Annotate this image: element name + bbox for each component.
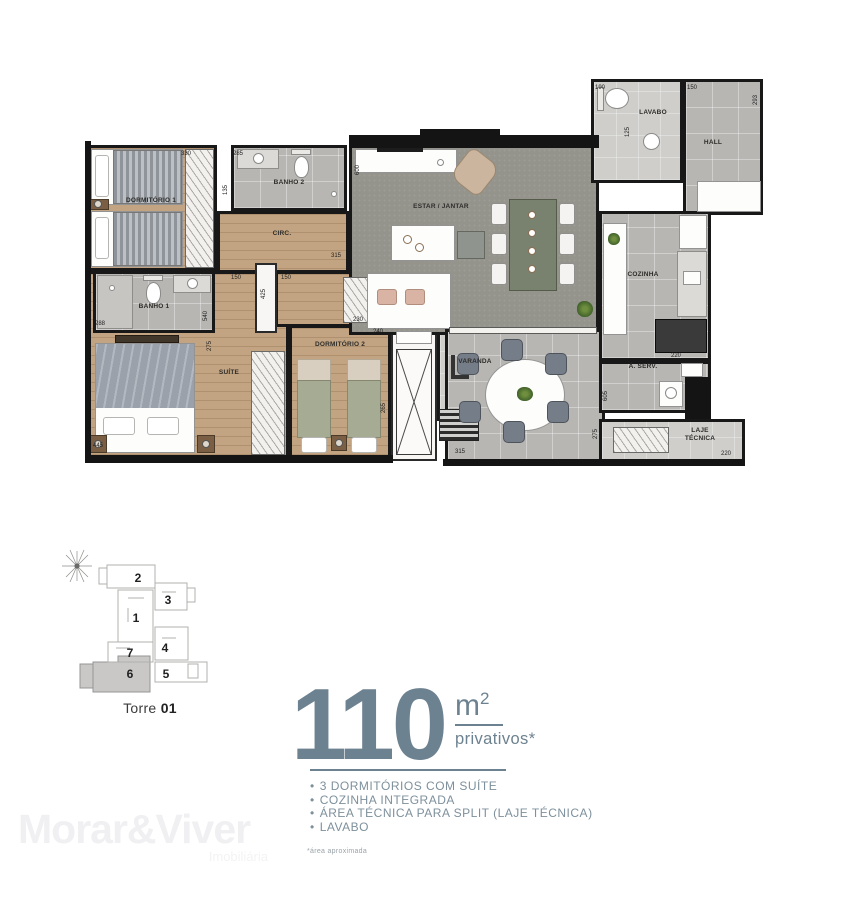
plant bbox=[517, 387, 533, 401]
table-setting bbox=[528, 229, 536, 237]
fridge bbox=[679, 215, 707, 249]
tower-label: Torre bbox=[123, 700, 156, 716]
feature-list: •3 DORMITÓRIOS COM SUÍTE •COZINHA INTEGR… bbox=[310, 780, 593, 834]
wall-segment bbox=[85, 141, 91, 461]
washer-door bbox=[665, 387, 677, 399]
bed-blanket bbox=[297, 380, 331, 438]
floor-plan: DORMITÓRIO 1 BANHO 2 CIRC. BANHO 1 SUÍTE… bbox=[85, 75, 767, 469]
coffee-table bbox=[391, 225, 455, 261]
unit-number-6: 6 bbox=[127, 667, 134, 681]
dim-label: 605 bbox=[603, 391, 609, 401]
dim-label: 220 bbox=[671, 353, 681, 359]
area-unit-block: m2 privativos* bbox=[455, 690, 536, 749]
room-label: ESTAR / JANTAR bbox=[391, 203, 491, 211]
compass-icon bbox=[62, 550, 92, 582]
unit-6-highlight bbox=[93, 656, 150, 692]
area-unit: m2 bbox=[455, 690, 503, 726]
decor bbox=[437, 159, 444, 166]
watermark-brand: Morar&Viver bbox=[18, 806, 268, 853]
duct-x-icon bbox=[396, 349, 432, 455]
plant bbox=[577, 301, 593, 317]
table-setting bbox=[528, 211, 536, 219]
bed-head bbox=[347, 359, 381, 381]
sofa-cushion bbox=[377, 289, 397, 305]
dim-label: 125 bbox=[625, 127, 631, 137]
elevator-shaft bbox=[685, 377, 711, 419]
chair bbox=[559, 203, 575, 225]
dim-label: 240 bbox=[373, 329, 383, 335]
room-label: LAJE TÉCNICA bbox=[677, 427, 723, 443]
toilet-tank bbox=[291, 149, 311, 155]
bed-blanket bbox=[96, 344, 194, 408]
feature-item: •LAVABO bbox=[310, 821, 593, 835]
toilet bbox=[605, 88, 629, 109]
wardrobe bbox=[185, 149, 214, 268]
room-label: CIRC. bbox=[247, 230, 317, 238]
unit-number-3: 3 bbox=[165, 593, 172, 607]
wardrobe bbox=[251, 351, 285, 455]
dim-label: 315 bbox=[455, 449, 465, 455]
sliding-door bbox=[449, 327, 597, 334]
decor bbox=[403, 235, 412, 244]
chair bbox=[491, 203, 507, 225]
wall-segment bbox=[420, 129, 500, 138]
lamp bbox=[335, 439, 343, 447]
stove bbox=[655, 319, 707, 353]
counter bbox=[697, 181, 761, 212]
table-setting bbox=[528, 247, 536, 255]
bed-blanket bbox=[113, 212, 182, 266]
sink bbox=[253, 153, 264, 164]
unit-6-annex bbox=[80, 664, 93, 688]
room-label: VARANDA bbox=[453, 358, 497, 366]
dim-label: 315 bbox=[331, 253, 341, 259]
sink bbox=[683, 271, 701, 285]
sofa-cushion bbox=[405, 289, 425, 305]
room-label: DORMITÓRIO 2 bbox=[291, 341, 389, 349]
dim-label: 230 bbox=[353, 317, 363, 323]
plant bbox=[608, 233, 620, 245]
room-label: BANHO 1 bbox=[119, 303, 189, 311]
room-circ bbox=[217, 211, 349, 273]
chair bbox=[559, 233, 575, 255]
room-label: SUÍTE bbox=[203, 369, 255, 377]
dim-label: 220 bbox=[721, 451, 731, 457]
dim-label: 275 bbox=[593, 429, 599, 439]
chair bbox=[545, 353, 567, 375]
pipe bbox=[451, 375, 469, 379]
watermark: Morar&Viver Imobiliária bbox=[18, 806, 268, 864]
bed-blanket bbox=[113, 150, 182, 204]
unit-number-1: 1 bbox=[133, 611, 140, 625]
tower-number: 01 bbox=[161, 700, 177, 716]
laundry-sink bbox=[681, 363, 703, 377]
toilet-tank bbox=[143, 275, 163, 281]
bed-pillow bbox=[301, 437, 327, 453]
dim-label: 425 bbox=[261, 289, 267, 299]
shaft-box bbox=[396, 331, 432, 344]
tower-caption: Torre 01 bbox=[50, 700, 250, 716]
sink bbox=[643, 133, 660, 150]
chair bbox=[459, 401, 481, 423]
dim-label: 150 bbox=[687, 85, 697, 91]
dim-label: 293 bbox=[753, 95, 759, 105]
room-label: DORMITÓRIO 1 bbox=[101, 197, 201, 205]
dim-label: 190 bbox=[595, 85, 605, 91]
unit-number-2: 2 bbox=[135, 571, 142, 585]
room-label: BANHO 2 bbox=[249, 179, 329, 187]
divider-line bbox=[310, 769, 506, 771]
feature-item: •3 DORMITÓRIOS COM SUÍTE bbox=[310, 780, 593, 794]
dim-label: 265 bbox=[381, 403, 387, 413]
unit-number-5: 5 bbox=[163, 667, 170, 681]
dim-label: 540 bbox=[203, 311, 209, 321]
dim-label: 600 bbox=[355, 165, 361, 175]
shower-drain bbox=[331, 191, 337, 197]
wall-segment bbox=[443, 459, 745, 466]
dim-label: 330 bbox=[181, 151, 191, 157]
toilet bbox=[146, 282, 161, 304]
chair bbox=[491, 263, 507, 285]
dim-label: 445 bbox=[93, 443, 103, 449]
area-value: 110 bbox=[291, 681, 445, 770]
footnote: *área aproximada bbox=[307, 848, 367, 855]
unit-number-7: 7 bbox=[127, 646, 134, 660]
dresser bbox=[115, 335, 179, 343]
table-setting bbox=[528, 265, 536, 273]
dim-label: 150 bbox=[231, 275, 241, 281]
bed-pillow bbox=[147, 417, 179, 435]
dim-label: 288 bbox=[95, 321, 105, 327]
room-label: Á. SERV. bbox=[615, 363, 671, 371]
shower-drain bbox=[109, 285, 115, 291]
dim-label: 285 bbox=[233, 151, 243, 157]
unit-number-4: 4 bbox=[162, 641, 169, 655]
bed-pillow bbox=[103, 417, 135, 435]
dim-label: 275 bbox=[207, 341, 213, 351]
chair bbox=[559, 263, 575, 285]
bed-pillow bbox=[351, 437, 377, 453]
sink bbox=[187, 278, 198, 289]
room-label: LAVABO bbox=[631, 109, 675, 117]
side-table bbox=[457, 231, 485, 259]
bed-pillow bbox=[95, 155, 109, 197]
bed-head bbox=[297, 359, 331, 381]
area-qualifier: privativos* bbox=[455, 730, 536, 749]
dim-label: 135 bbox=[223, 185, 229, 195]
chair bbox=[491, 233, 507, 255]
room-label: HALL bbox=[693, 139, 733, 147]
ac-condenser bbox=[613, 427, 669, 453]
bed-pillow bbox=[95, 217, 109, 259]
chair bbox=[501, 339, 523, 361]
page: DORMITÓRIO 1 BANHO 2 CIRC. BANHO 1 SUÍTE… bbox=[0, 0, 842, 900]
wall-segment bbox=[85, 455, 393, 463]
feature-item: •ÁREA TÉCNICA PARA SPLIT (LAJE TÉCNICA) bbox=[310, 807, 593, 821]
room-label: COZINHA bbox=[613, 271, 673, 279]
tower-key-plan: 2 3 1 4 7 6 5 bbox=[50, 548, 250, 698]
chair bbox=[547, 401, 569, 423]
dim-label: 150 bbox=[281, 275, 291, 281]
bed-blanket bbox=[347, 380, 381, 438]
chair bbox=[503, 421, 525, 443]
toilet bbox=[294, 156, 309, 178]
decor bbox=[415, 243, 424, 252]
lamp bbox=[202, 440, 210, 448]
